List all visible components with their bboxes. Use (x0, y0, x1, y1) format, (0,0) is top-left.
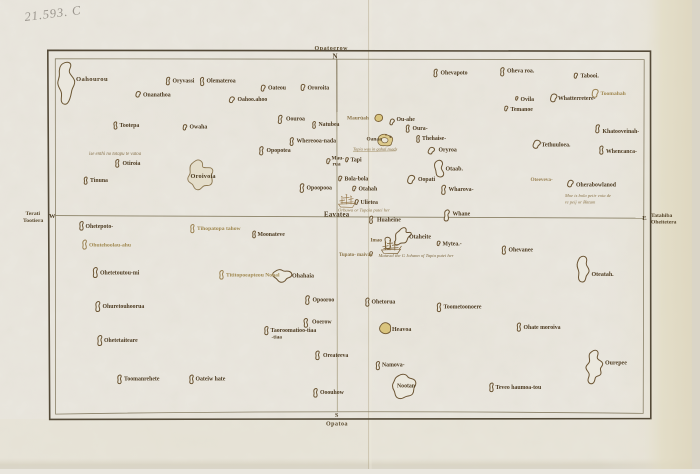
svg-text:Toometoonoere: Toometoonoere (444, 305, 482, 311)
svg-text:Oteeveva-: Oteeveva- (531, 177, 553, 183)
svg-text:Oroivoia: Oroivoia (191, 173, 217, 180)
svg-text:Oura-: Oura- (413, 126, 428, 132)
svg-text:re peij or Bittam: re peij or Bittam (565, 200, 596, 205)
svg-text:Oahourou: Oahourou (76, 76, 108, 83)
svg-text:Eavatea: Eavatea (324, 212, 350, 219)
svg-text:Oryroa: Oryroa (439, 148, 457, 154)
svg-text:Ohahaia: Ohahaia (292, 274, 314, 280)
svg-text:Tititopoeapteou Nohal: Tititopoeapteou Nohal (226, 273, 280, 279)
svg-text:Ohetorua: Ohetorua (372, 300, 396, 306)
svg-text:Temanoe: Temanoe (511, 107, 534, 113)
svg-text:Khatooveinah-: Khatooveinah- (603, 129, 640, 135)
svg-text:Oateiw hate: Oateiw hate (196, 377, 226, 383)
svg-text:Tatahiba: Tatahiba (651, 213, 672, 219)
svg-text:Oheitetera: Oheitetera (651, 220, 677, 226)
svg-text:Otaheite: Otaheite (409, 235, 431, 241)
svg-text:Opopotea: Opopotea (267, 148, 291, 154)
svg-text:Ooerow: Ooerow (312, 320, 332, 326)
svg-text:Moonateve: Moonateve (258, 232, 286, 238)
svg-text:Mytea.-: Mytea.- (443, 242, 462, 248)
svg-text:Ohetepoto-: Ohetepoto- (86, 224, 114, 230)
svg-text:Oryvassi: Oryvassi (173, 79, 195, 85)
svg-text:Toomahah: Toomahah (601, 91, 627, 97)
svg-text:Tupato- maivao: Tupato- maivao (339, 253, 373, 258)
svg-text:Oherabowlanod: Oherabowlanod (576, 183, 617, 189)
svg-text:rua: rua (333, 162, 341, 168)
svg-text:Tabooi.: Tabooi. (581, 74, 600, 80)
svg-text:Thehaise-: Thehaise- (422, 136, 446, 142)
svg-text:Oteatah.: Oteatah. (592, 272, 615, 278)
svg-text:Oreateeva: Oreateeva (323, 353, 348, 359)
svg-text:Oanaa: Oanaa (367, 137, 383, 143)
svg-text:Namova-: Namova- (382, 363, 405, 369)
svg-text:N: N (333, 52, 338, 60)
svg-text:Terati: Terati (26, 211, 41, 217)
svg-text:Oopati: Oopati (418, 177, 435, 183)
svg-text:Imao: Imao (371, 238, 383, 244)
svg-text:Ourepee: Ourepee (605, 361, 627, 367)
svg-text:Opatoerow: Opatoerow (315, 46, 349, 52)
svg-text:Oheva roa.: Oheva roa. (507, 69, 535, 75)
svg-text:Tootepa: Tootepa (120, 123, 140, 129)
svg-text:Otaab.: Otaab. (446, 167, 464, 173)
svg-text:Olemateroa: Olemateroa (207, 79, 236, 85)
svg-text:Ohetetaiteare: Ohetetaiteare (104, 338, 138, 344)
svg-text:Taoroomatioo-tiaa: Taoroomatioo-tiaa (271, 328, 317, 334)
svg-text:Moe is bola petir voia de: Moe is bola petir voia de (564, 193, 611, 198)
svg-text:Ooouhow: Ooouhow (320, 390, 345, 396)
svg-text:Ovila: Ovila (521, 97, 535, 103)
svg-text:Opatoa: Opatoa (326, 422, 348, 428)
svg-text:W: W (49, 213, 56, 220)
svg-text:Tapi: Tapi (351, 158, 362, 164)
svg-text:Ou-ahe: Ou-ahe (397, 117, 416, 123)
svg-text:Ohevapoto: Ohevapoto (441, 71, 468, 77)
svg-text:Whane: Whane (453, 212, 471, 218)
svg-text:Wharova-: Wharova- (449, 187, 474, 193)
svg-text:Ulietea: Ulietea (361, 200, 378, 206)
svg-text:Oateou: Oateou (268, 86, 287, 92)
svg-text:Heavoa: Heavoa (392, 327, 411, 333)
svg-text:Tinuna: Tinuna (90, 178, 108, 184)
svg-text:Owaha: Owaha (190, 125, 208, 131)
svg-text:Oahoo.ahoo: Oahoo.ahoo (238, 97, 268, 103)
svg-text:E: E (642, 215, 646, 222)
svg-text:Tethuuloea.: Tethuuloea. (542, 143, 571, 149)
svg-text:Nootan: Nootan (397, 384, 416, 390)
svg-text:Huaheine: Huaheine (377, 217, 401, 223)
svg-text:Ohevanee: Ohevanee (509, 248, 534, 254)
svg-text:Whereooa-nada: Whereooa-nada (297, 139, 337, 145)
svg-text:ise enthi no totapu te vatoa: ise enthi no totapu te vatoa (89, 152, 142, 157)
svg-text:Mataval the G Johann of Tapia: Mataval the G Johann of Tapia putei her (378, 253, 454, 258)
svg-text:Whatterretere-: Whatterretere- (558, 96, 596, 102)
svg-text:Teveo haumoa-tou: Teveo haumoa-tou (496, 385, 542, 391)
svg-text:Ohutehoolau-ahu: Ohutehoolau-ahu (89, 243, 131, 249)
svg-text:Natubea: Natubea (319, 122, 340, 128)
svg-text:Otiroia: Otiroia (123, 161, 141, 167)
svg-text:Tootiera: Tootiera (23, 218, 43, 224)
svg-text:Oouroa: Oouroa (286, 117, 305, 123)
svg-text:Otahah: Otahah (359, 187, 378, 193)
svg-text:Onanathoa: Onanathoa (143, 93, 171, 99)
svg-text:Ohetetoutou-mi: Ohetetoutou-mi (100, 271, 140, 277)
svg-text:Tihopatopa tahow: Tihopatopa tahow (197, 226, 242, 232)
svg-text:Ohuretouhoorua: Ohuretouhoorua (103, 304, 145, 310)
svg-text:Bola-bola: Bola-bola (345, 177, 369, 183)
svg-text:Toomanrehete: Toomanrehete (124, 377, 160, 383)
svg-text:Ororoita: Ororoita (308, 86, 330, 92)
svg-text:Whencanca-: Whencanca- (606, 149, 637, 155)
svg-text:Maurúah: Maurúah (347, 116, 369, 122)
svg-text:Opoopooa: Opoopooa (307, 186, 333, 192)
svg-text:Tapia was in gahal roads: Tapia was in gahal roads (353, 146, 398, 151)
svg-text:Opooroo: Opooroo (313, 298, 335, 304)
svg-text:Ohate moroiva: Ohate moroiva (524, 325, 561, 331)
svg-text:-tiaa: -tiaa (272, 335, 283, 341)
